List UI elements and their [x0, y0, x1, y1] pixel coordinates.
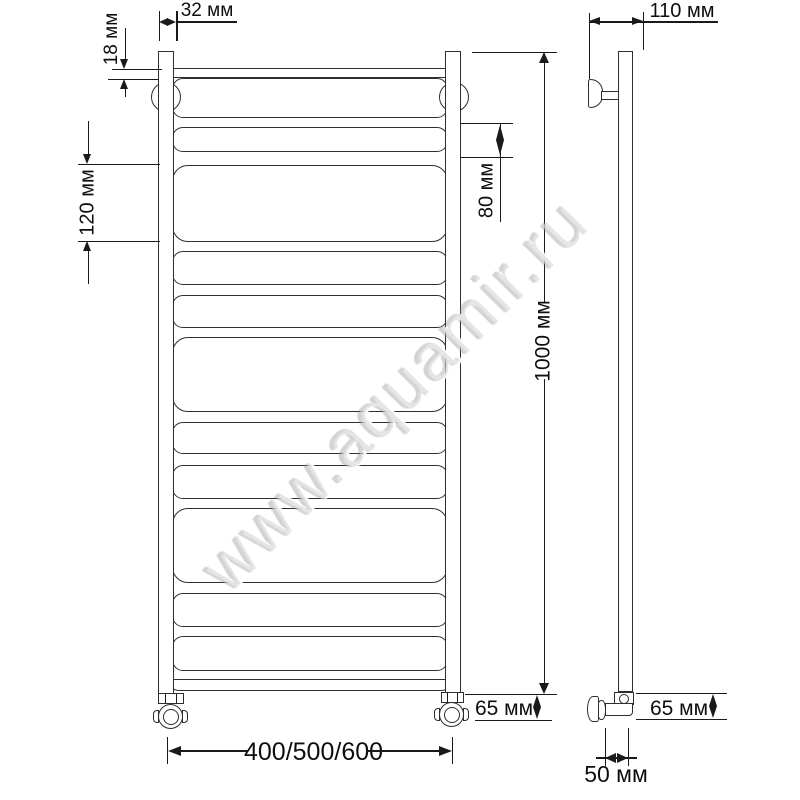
- dim-18-arrow-down: [120, 59, 128, 69]
- dim-18-tail: [125, 89, 127, 97]
- dim-1000-arrow-down: [539, 683, 549, 694]
- dim-120-tail-bottom: [88, 251, 90, 284]
- rung: [172, 78, 448, 118]
- side-post-tube: [618, 51, 633, 692]
- dim-18-arrow-up: [120, 79, 128, 89]
- rung: [172, 337, 448, 412]
- dim-120-arrow-up: [83, 241, 91, 251]
- rung: [172, 465, 448, 499]
- rung: [172, 127, 448, 152]
- dim-80-ext-bottom: [461, 157, 513, 159]
- rung: [172, 295, 448, 328]
- dim-80-label: 80 мм: [477, 162, 498, 220]
- dim-400-line-right: [366, 750, 439, 752]
- rung: [172, 251, 448, 285]
- dim-1000-label: 1000 мм: [533, 297, 555, 386]
- dim-400-arrow-left: [168, 746, 181, 756]
- dim-32-arrow-right: [167, 18, 176, 26]
- side-elbow-arm: [605, 703, 633, 716]
- dim-400-arrow-right: [439, 746, 452, 756]
- dim-1000-line-upper: [544, 63, 546, 303]
- dim-80-ext-top: [461, 123, 513, 125]
- dim-50-label: 50 мм: [582, 761, 650, 788]
- dim-1000-ext-bottom: [465, 694, 557, 696]
- left-valve-nut-facet: [165, 694, 166, 703]
- dim-18-ext-bottom: [108, 79, 158, 81]
- wall-bracket-stem: [601, 91, 619, 100]
- left-valve-inner-ring: [163, 709, 179, 725]
- dim-80-arrow-down: [496, 140, 504, 155]
- bottom-crossbar-tube: [167, 679, 453, 691]
- rung: [172, 422, 448, 454]
- dim-18-ext-top: [112, 69, 162, 71]
- right-valve-nut-facet: [457, 693, 458, 702]
- dim-110-arrow-right: [632, 17, 643, 25]
- dim-120-tail-top: [88, 121, 90, 154]
- dim-80-arrow-up: [496, 125, 504, 140]
- dim-110-label: 110 мм: [646, 0, 718, 23]
- right-post-tube: [445, 51, 461, 694]
- left-valve-nut: [158, 693, 184, 704]
- dim-400-line-left: [181, 750, 247, 752]
- dim-400-label: 400/500/600: [244, 738, 366, 767]
- rung: [172, 593, 448, 627]
- dim-1000-line-lower: [544, 379, 546, 683]
- towel-rail-technical-drawing: 32 мм 18 мм 120 мм 80 мм 1000 мм: [0, 0, 800, 800]
- side-wall-escutcheon: [587, 696, 599, 722]
- rung: [172, 508, 448, 583]
- top-crossbar-tube: [174, 68, 446, 78]
- right-valve-nut-facet: [447, 693, 448, 702]
- dim-110-arrow-left: [589, 17, 600, 25]
- dim-120-arrow-down: [83, 154, 91, 164]
- left-valve-nut-facet: [176, 694, 177, 703]
- rung: [172, 636, 448, 671]
- dim-120-label: 120 мм: [78, 167, 99, 239]
- dim-32-ext-left: [159, 11, 161, 41]
- left-post-tube: [158, 51, 174, 694]
- rung: [172, 165, 448, 242]
- dim-65f-label: 65 мм: [474, 697, 534, 721]
- dim-18-leader: [125, 28, 127, 59]
- dim-1000-arrow-up: [539, 52, 549, 63]
- dim-65s-label: 65 мм: [648, 697, 710, 721]
- right-valve-inner-ring: [444, 707, 460, 723]
- dim-32-label: 32 мм: [176, 0, 238, 22]
